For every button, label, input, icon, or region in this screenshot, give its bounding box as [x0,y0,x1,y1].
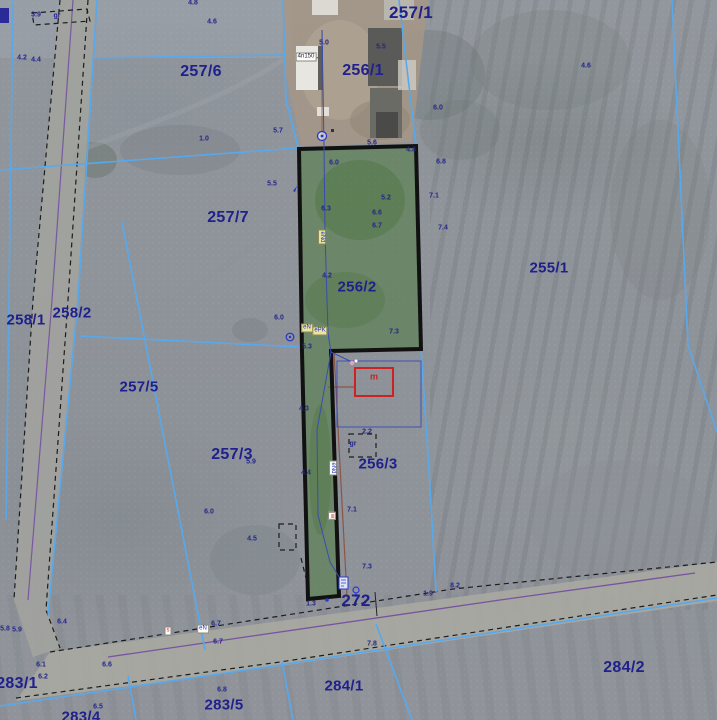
annotation-label: 4n150 [296,53,317,62]
annotation-label: eNd [329,460,337,475]
parcel-label-258-2: 258/2 [52,305,91,322]
measurement-label: 4.8 [188,0,198,7]
measurement-label: 8.2 [450,583,460,590]
parcel-label-257-6: 257/6 [180,63,222,81]
measurement-label: 6.0 [329,160,339,167]
measurement-label: 4.6 [581,63,591,70]
measurement-label: 4.5 [247,536,257,543]
measurement-label: 7.1 [429,193,439,200]
measurement-label: 7.1 [347,507,357,514]
measurement-label: 4.3 [299,406,309,413]
measurement-label: 5.6 [367,140,377,147]
measurement-label: 5.2 [381,195,391,202]
measurement-label: 4.2 [322,273,332,280]
measurement-label: 5.7 [273,128,283,135]
measurement-label: 7.8 [367,641,377,648]
annotation-label: m [370,374,378,381]
measurement-label: 7.3 [362,564,372,571]
parcel-label-256-2: 256/2 [337,279,376,296]
annotation-label: eNd [318,229,326,244]
measurement-label: gr [54,13,61,20]
measurement-label: 6.7 [372,223,382,230]
measurement-label: 5.9 [12,627,22,634]
measurement-label: 1.3 [306,601,316,608]
measurement-label: 6.1 [36,662,46,669]
measurement-label: 5.8 [0,626,10,633]
measurement-label: 4.4 [301,470,311,477]
parcel-label-283-1: 283/1 [0,675,38,693]
annotation-label: ePK [312,327,327,336]
parcel-label-258-1: 258/1 [6,312,45,329]
annotation-label: s [165,627,172,636]
map-labels-layer: 257/1257/6256/1257/7255/1256/2258/1258/2… [0,0,717,720]
annotation-label: w [328,512,336,520]
measurement-label: 6.8 [217,687,227,694]
measurement-label: 5.3 [302,344,312,351]
measurement-label: 6.7 [213,639,223,646]
parcel-label-272: 272 [341,591,370,611]
measurement-label: 4.6 [207,19,217,26]
measurement-label: 5.5 [376,44,386,51]
measurement-label: 4.8 [406,147,416,154]
measurement-label: 6.0 [433,105,443,112]
measurement-label: 6.0 [274,315,284,322]
measurement-label: 4.4 [31,57,41,64]
measurement-label: 1.0 [199,136,209,143]
measurement-label: 7.3 [389,329,399,336]
measurement-label: 4.2 [17,55,27,62]
measurement-label: 1.9 [423,591,433,598]
parcel-label-257-1: 257/1 [389,3,433,23]
parcel-label-256-3: 256/3 [358,456,397,473]
measurement-label: 5.9 [246,459,256,466]
measurement-label: 3.9 [31,12,41,19]
parcel-label-255-1: 255/1 [529,260,568,277]
measurement-label: 5.0 [319,40,329,47]
measurement-label: 6.8 [436,159,446,166]
measurement-label: 6.5 [93,704,103,711]
annotation-label: eN [197,625,209,634]
measurement-label: 2.2 [362,429,372,436]
measurement-label: 6.0 [204,509,214,516]
annotation-label: eN [301,324,313,333]
parcel-label-257-5: 257/5 [119,379,158,396]
measurement-label: 6.3 [321,206,331,213]
parcel-label-257-7: 257/7 [207,209,249,227]
parcel-label-283-5: 283/5 [204,697,243,714]
measurement-label: 6.7 [211,621,221,628]
measurement-label: 6.2 [38,674,48,681]
cadastral-map: 257/1257/6256/1257/7255/1256/2258/1258/2… [0,0,717,720]
parcel-label-256-1: 256/1 [342,62,384,80]
measurement-label: 5.5 [267,181,277,188]
measurement-label: 6.6 [102,662,112,669]
measurement-label: gr [350,441,357,448]
parcel-label-284-2: 284/2 [603,659,645,677]
measurement-label: 6.4 [57,619,67,626]
parcel-label-284-1: 284/1 [324,678,363,695]
measurement-label: 7.4 [438,225,448,232]
measurement-label: 6.6 [372,210,382,217]
